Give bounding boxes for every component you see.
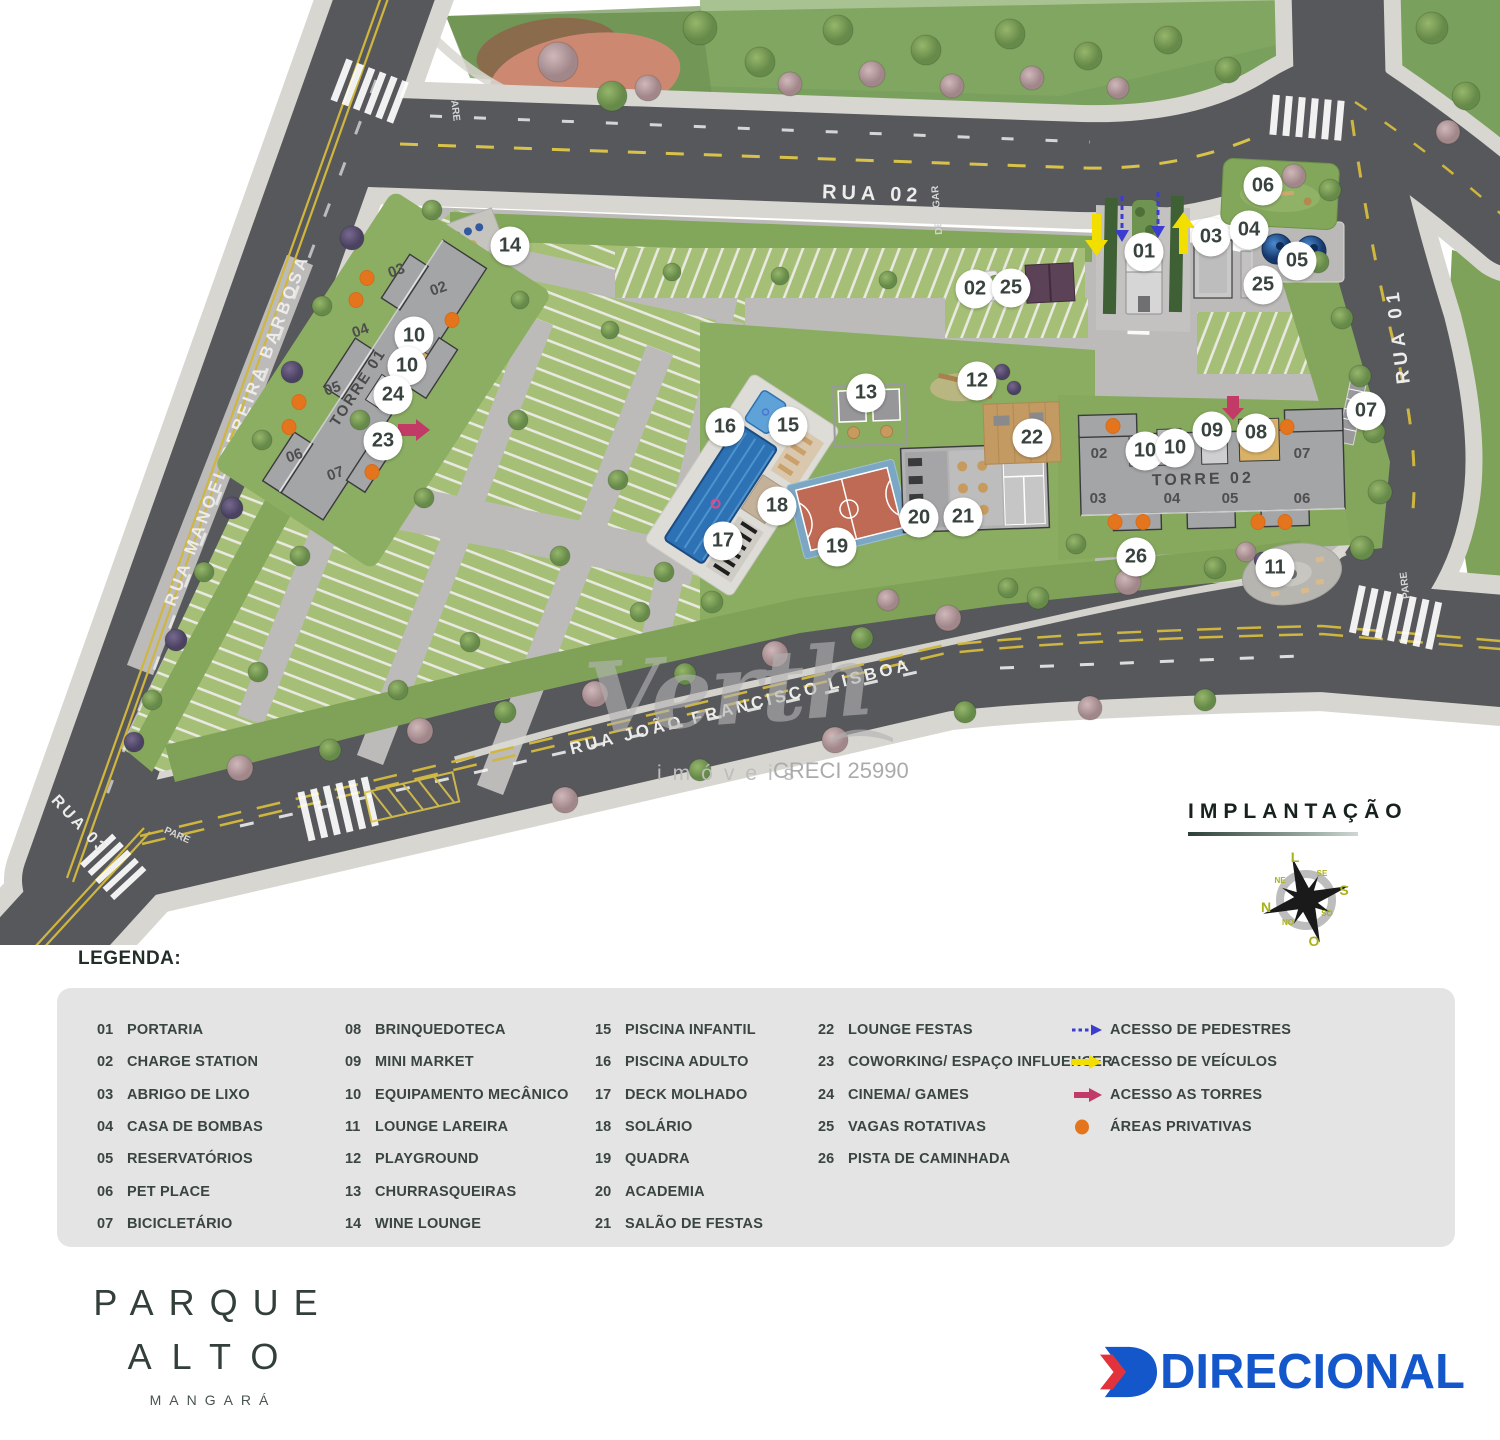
pedestrian-access-icon: [1070, 1022, 1110, 1038]
legend-item-number: 15: [595, 1022, 625, 1038]
legend-item-number: 19: [595, 1151, 625, 1167]
legend-box: 01PORTARIA02CHARGE STATION03ABRIGO DE LI…: [57, 988, 1455, 1247]
compass-no: NO: [1282, 918, 1294, 927]
legend-item-number: 21: [595, 1216, 625, 1232]
legend-item-number: 04: [97, 1119, 127, 1135]
legend-item-number: 06: [97, 1184, 127, 1200]
developer-logo-mark-icon: [1100, 1345, 1158, 1399]
legend-item-label: PET PLACE: [127, 1184, 210, 1200]
legend-item-15: 15PISCINA INFANTIL: [595, 1014, 763, 1046]
legend-item-label: CHURRASQUEIRAS: [375, 1184, 516, 1200]
compass-north: N: [1261, 899, 1271, 915]
legend-item-07: 07BICICLETÁRIO: [97, 1208, 263, 1240]
private-access-icon: [1070, 1119, 1110, 1135]
compass-west: O: [1309, 933, 1320, 949]
legend-item-number: 14: [345, 1216, 375, 1232]
tower-2-unit: 04: [1164, 490, 1181, 507]
legend-item-label: RESERVATÓRIOS: [127, 1151, 253, 1167]
legend-item-label: LOUNGE LAREIRA: [375, 1119, 508, 1135]
legend-item-label: EQUIPAMENTO MECÂNICO: [375, 1087, 569, 1103]
legend-item-number: 26: [818, 1151, 848, 1167]
legend-item-label: PISCINA ADULTO: [625, 1054, 749, 1070]
legend-item-label: CASA DE BOMBAS: [127, 1119, 263, 1135]
legend-item-16: 16PISCINA ADULTO: [595, 1046, 763, 1078]
tower-2-unit: 07: [1294, 445, 1311, 462]
vehicle-access-arrow: [1179, 228, 1188, 254]
legend-item-11: 11LOUNGE LAREIRA: [345, 1111, 569, 1143]
legend-item-label: PORTARIA: [127, 1022, 203, 1038]
tower-2-unit: 06: [1294, 490, 1311, 507]
tower-2-unit: 02: [1091, 445, 1108, 462]
legend-item-01: 01PORTARIA: [97, 1014, 263, 1046]
legend-item-number: 12: [345, 1151, 375, 1167]
legend-item-08: 08BRINQUEDOTECA: [345, 1014, 569, 1046]
legend-column-4: 22LOUNGE FESTAS23COWORKING/ ESPAÇO INFLU…: [818, 1014, 1113, 1175]
water-tank: [1262, 234, 1292, 264]
access-legend-item-towers: ACESSO AS TORRES: [1070, 1079, 1291, 1111]
tower-2-unit: 03: [1090, 490, 1107, 507]
legend-item-number: 23: [818, 1054, 848, 1070]
legend-item-04: 04CASA DE BOMBAS: [97, 1111, 263, 1143]
access-legend-label: ACESSO DE PEDESTRES: [1110, 1022, 1291, 1038]
legend-item-24: 24CINEMA/ GAMES: [818, 1079, 1113, 1111]
legend-item-label: DECK MOLHADO: [625, 1087, 747, 1103]
legend-item-label: PISTA DE CAMINHADA: [848, 1151, 1010, 1167]
mech-room: [1157, 429, 1182, 466]
legend-item-09: 09MINI MARKET: [345, 1046, 569, 1078]
top-parking-row: [615, 248, 1085, 298]
charge-station-stalls: [945, 298, 1088, 338]
legend-item-14: 14WINE LOUNGE: [345, 1208, 569, 1240]
compass-south: S: [1339, 882, 1348, 898]
legend-item-label: LOUNGE FESTAS: [848, 1022, 973, 1038]
project-logo-line1: PARQUE: [68, 1282, 358, 1324]
legend-item-label: WINE LOUNGE: [375, 1216, 481, 1232]
street-label-rua-02: RUA 02: [822, 181, 923, 206]
legend-item-06: 06PET PLACE: [97, 1175, 263, 1207]
legend-column-3: 15PISCINA INFANTIL16PISCINA ADULTO17DECK…: [595, 1014, 763, 1240]
vehicle-access-arrow: [1092, 214, 1101, 240]
section-title: IMPLANTAÇÃO: [1188, 800, 1368, 824]
access-legend-item-pedestrian: ACESSO DE PEDESTRES: [1070, 1014, 1291, 1046]
charge-station-canopy: [1025, 263, 1075, 303]
legend-item-22: 22LOUNGE FESTAS: [818, 1014, 1113, 1046]
legend-item-label: SOLÁRIO: [625, 1119, 692, 1135]
legend-item-number: 05: [97, 1151, 127, 1167]
legend-item-number: 16: [595, 1054, 625, 1070]
tower-2-label: TORRE 02: [1152, 470, 1254, 490]
access-legend-label: ACESSO AS TORRES: [1110, 1087, 1262, 1103]
legend-item-label: ACADEMIA: [625, 1184, 705, 1200]
legend-item-label: QUADRA: [625, 1151, 690, 1167]
legend-item-13: 13CHURRASQUEIRAS: [345, 1175, 569, 1207]
legend-item-label: BICICLETÁRIO: [127, 1216, 233, 1232]
access-legend-item-private: ÁREAS PRIVATIVAS: [1070, 1111, 1291, 1143]
access-legend-label: ÁREAS PRIVATIVAS: [1110, 1119, 1252, 1135]
party-lounge-deck: [983, 402, 1061, 465]
legend-item-label: SALÃO DE FESTAS: [625, 1216, 763, 1232]
legend-item-number: 20: [595, 1184, 625, 1200]
legend-item-12: 12PLAYGROUND: [345, 1143, 569, 1175]
legend-title: LEGENDA:: [78, 948, 181, 970]
towers-access-icon: [1070, 1087, 1110, 1103]
section-rule: [1188, 832, 1358, 836]
legend-item-number: 01: [97, 1022, 127, 1038]
compass-se: SE: [1317, 869, 1328, 878]
legend-column-1: 01PORTARIA02CHARGE STATION03ABRIGO DE LI…: [97, 1014, 263, 1240]
compass-ne: NE: [1274, 876, 1286, 885]
watermark-swoosh-icon: [827, 718, 897, 744]
legend-column-2: 08BRINQUEDOTECA09MINI MARKET10EQUIPAMENT…: [345, 1014, 569, 1240]
legend-item-10: 10EQUIPAMENTO MECÂNICO: [345, 1079, 569, 1111]
hedge: [1169, 196, 1184, 312]
legend-item-number: 09: [345, 1054, 375, 1070]
hedge: [1103, 198, 1118, 314]
legend-item-number: 08: [345, 1022, 375, 1038]
legend-item-label: CINEMA/ GAMES: [848, 1087, 969, 1103]
section-heading: IMPLANTAÇÃO: [1188, 800, 1368, 836]
legend-item-number: 10: [345, 1087, 375, 1103]
tower-2-unit: 05: [1222, 490, 1239, 507]
compass-east: L: [1291, 849, 1300, 865]
project-logo-line3: MANGARÁ: [68, 1392, 358, 1408]
mini-market-room: [1201, 420, 1228, 465]
legend-item-number: 02: [97, 1054, 127, 1070]
compass-icon: L S O N NE SE SO NO: [1244, 842, 1368, 958]
legend-item-21: 21SALÃO DE FESTAS: [595, 1208, 763, 1240]
watermark-creci: CRECI 25990: [773, 758, 909, 784]
legend-item-label: VAGAS ROTATIVAS: [848, 1119, 986, 1135]
legend-item-19: 19QUADRA: [595, 1143, 763, 1175]
legend-item-number: 22: [818, 1022, 848, 1038]
vehicle-access-icon: [1070, 1054, 1110, 1070]
legend-item-label: CHARGE STATION: [127, 1054, 258, 1070]
access-legend-label: ACESSO DE VEÍCULOS: [1110, 1054, 1277, 1070]
legend-item-20: 20ACADEMIA: [595, 1175, 763, 1207]
legend-item-03: 03ABRIGO DE LIXO: [97, 1079, 263, 1111]
legend-item-17: 17DECK MOLHADO: [595, 1079, 763, 1111]
mech-room: [1129, 435, 1156, 466]
legend-access-column: ACESSO DE PEDESTRESACESSO DE VEÍCULOSACE…: [1070, 1014, 1291, 1143]
legend-item-23: 23COWORKING/ ESPAÇO INFLUENCER: [818, 1046, 1113, 1078]
legend-item-25: 25VAGAS ROTATIVAS: [818, 1111, 1113, 1143]
playroom: [1239, 418, 1280, 461]
page: RUA 02 RUA MANOEL PEREIRA BARBOSA RUA 01…: [0, 0, 1500, 1440]
legend-item-18: 18SOLÁRIO: [595, 1111, 763, 1143]
legend-item-number: 11: [345, 1119, 375, 1135]
project-logo-line2: ALTO: [68, 1336, 358, 1378]
legend-item-label: PISCINA INFANTIL: [625, 1022, 756, 1038]
developer-logo: DIRECIONAL: [1100, 1344, 1465, 1400]
developer-logo-name: DIRECIONAL: [1160, 1344, 1465, 1400]
legend-item-number: 24: [818, 1087, 848, 1103]
compass-so: SO: [1321, 909, 1333, 918]
legend-item-label: ABRIGO DE LIXO: [127, 1087, 250, 1103]
legend-item-05: 05RESERVATÓRIOS: [97, 1143, 263, 1175]
legend-item-number: 07: [97, 1216, 127, 1232]
watermark: Verth imóveis CRECI 25990: [585, 640, 925, 810]
legend-item-number: 25: [818, 1119, 848, 1135]
legend-item-number: 03: [97, 1087, 127, 1103]
legend-item-label: PLAYGROUND: [375, 1151, 479, 1167]
legend-item-number: 13: [345, 1184, 375, 1200]
access-legend-item-vehicle: ACESSO DE VEÍCULOS: [1070, 1046, 1291, 1078]
legend-item-26: 26PISTA DE CAMINHADA: [818, 1143, 1113, 1175]
legend-item-number: 17: [595, 1087, 625, 1103]
legend-item-label: MINI MARKET: [375, 1054, 474, 1070]
legend-item-02: 02CHARGE STATION: [97, 1046, 263, 1078]
project-logo: PARQUE ALTO MANGARÁ: [68, 1282, 358, 1408]
legend-item-label: BRINQUEDOTECA: [375, 1022, 506, 1038]
legend-item-number: 18: [595, 1119, 625, 1135]
